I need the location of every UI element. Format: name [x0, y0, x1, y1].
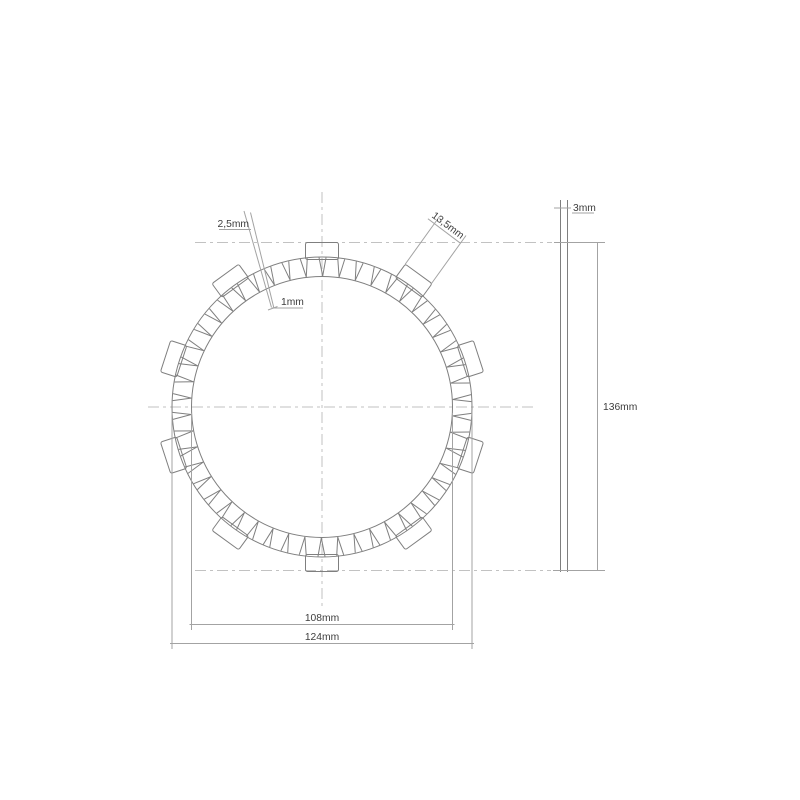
pad-groove-line: [197, 477, 211, 490]
drive-tab: [212, 517, 249, 550]
drive-tab: [457, 340, 483, 377]
pad-groove-line: [300, 259, 306, 277]
pad-groove-line: [398, 513, 406, 530]
pad-groove-line: [398, 513, 412, 526]
pad-groove-line: [453, 416, 471, 421]
pad-groove-line: [173, 415, 191, 420]
pad-groove-line: [232, 288, 246, 301]
drive-tab: [395, 517, 432, 550]
tab-width-label-group: 13,5mm: [428, 210, 467, 243]
pad-groove-line: [176, 431, 193, 438]
side-view: 3mm 136mm: [553, 200, 637, 572]
centerlines: [148, 192, 552, 610]
pad-groove-line: [209, 309, 221, 323]
pad-groove-line: [217, 502, 232, 513]
dimension-overall-height: 136mm: [598, 243, 638, 571]
label-height: 136mm: [603, 402, 637, 413]
pad-groove-line: [400, 288, 414, 301]
pad-groove-line: [423, 491, 435, 505]
pad-groove-line: [337, 537, 338, 556]
label-inner-dia: 108mm: [305, 613, 339, 624]
pad-groove-line: [247, 277, 259, 291]
pad-groove-line: [305, 537, 306, 556]
clutch-plate-technical-drawing: 2,5mm 1mm 13,5mm 108mm 124mm: [0, 0, 800, 800]
pad-groove-line: [339, 259, 345, 277]
drive-tab: [395, 264, 432, 297]
label-groove-inner: 1mm: [281, 297, 304, 308]
drive-tab: [212, 264, 249, 297]
label-groove-outer: 2,5mm: [218, 219, 249, 230]
drive-tab: [160, 340, 186, 377]
pad-groove-line: [173, 412, 192, 414]
drawing-canvas: 2,5mm 1mm 13,5mm 108mm 124mm: [0, 0, 800, 800]
dimension-tab-width: 13,5mm: [405, 210, 467, 284]
pad-groove-line: [412, 301, 427, 312]
pad-groove-line: [194, 477, 211, 484]
pad-groove-line: [205, 314, 222, 323]
pad-groove-line: [411, 503, 426, 514]
pad-groove-line: [385, 522, 391, 540]
pad-groove-line: [433, 330, 450, 337]
pad-groove-line: [318, 538, 321, 556]
pad-groove-line: [411, 503, 421, 519]
pad-groove-line: [338, 537, 344, 555]
groove-extension-line-right: [251, 213, 275, 309]
pad-groove-line: [237, 513, 245, 530]
pad-groove-line: [176, 375, 193, 382]
pad-groove-line: [338, 258, 339, 277]
pad-groove-line: [204, 490, 220, 499]
pad-groove-line: [432, 478, 446, 491]
pad-groove-line: [323, 258, 326, 276]
pad-groove-line: [451, 432, 468, 439]
pad-groove-line: [237, 284, 245, 301]
pad-groove-line: [453, 399, 472, 401]
pad-groove-line: [432, 478, 450, 485]
pad-groove-line: [453, 413, 472, 416]
pad-groove-line: [423, 309, 435, 324]
pad-groove-line: [222, 502, 232, 518]
pad-groove-line: [299, 537, 305, 555]
drive-tab: [160, 437, 186, 474]
pad-groove-line: [423, 315, 439, 324]
pad-groove-line: [173, 394, 191, 399]
label-outer-dia: 124mm: [305, 632, 339, 643]
pad-groove-line: [223, 295, 233, 311]
pad-groove-line: [385, 522, 397, 536]
drive-tab: [457, 437, 483, 474]
label-tab-width: 13,5mm: [429, 210, 465, 241]
pad-groove-line: [453, 395, 471, 400]
pad-groove-line: [306, 258, 307, 277]
pad-groove-line: [254, 274, 260, 292]
label-thickness: 3mm: [573, 203, 596, 214]
pad-groove-line: [412, 296, 422, 312]
pad-groove-line: [400, 284, 408, 301]
pad-groove-line: [198, 324, 212, 337]
pad-groove-line: [173, 398, 192, 401]
pad-groove-line: [194, 329, 212, 336]
pad-groove-line: [451, 376, 468, 383]
pad-groove-line: [217, 300, 232, 311]
tab-extension-line-right: [432, 236, 467, 284]
pad-groove-line: [209, 490, 221, 505]
pad-groove-line: [231, 513, 245, 526]
pad-groove-line: [423, 491, 440, 500]
pad-groove-line: [433, 324, 447, 337]
